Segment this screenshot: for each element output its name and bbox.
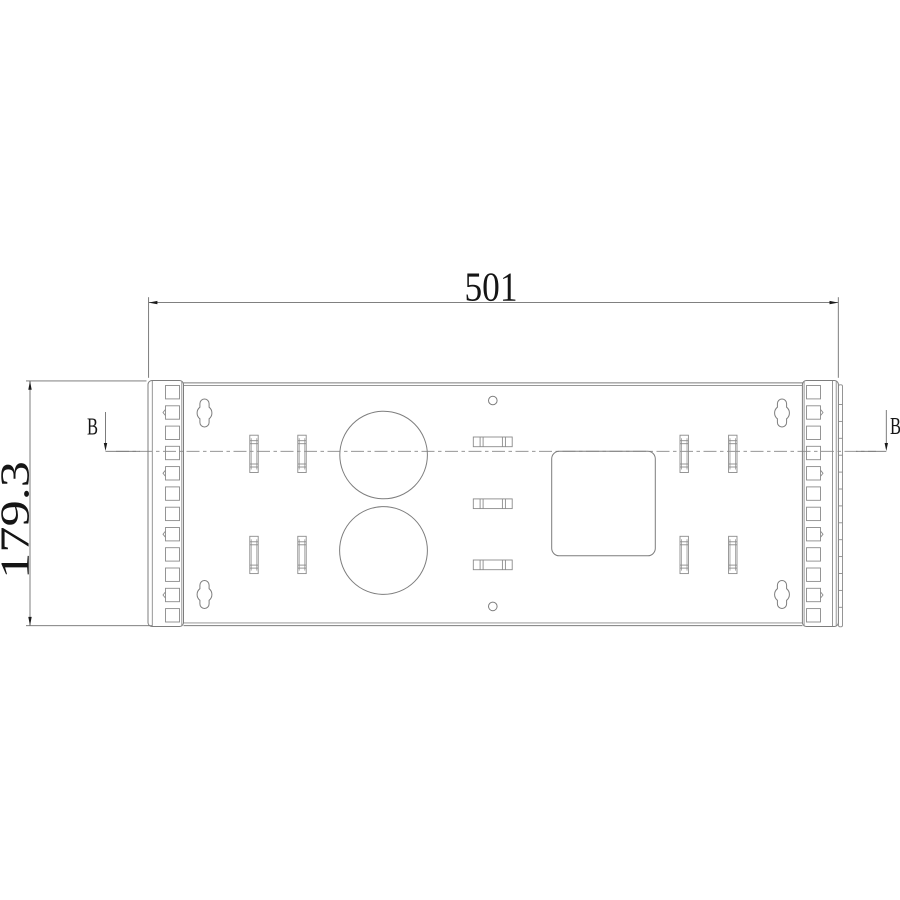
svg-text:179.3: 179.3 <box>0 461 38 579</box>
svg-text:B: B <box>87 415 98 441</box>
svg-text:B: B <box>890 414 900 440</box>
